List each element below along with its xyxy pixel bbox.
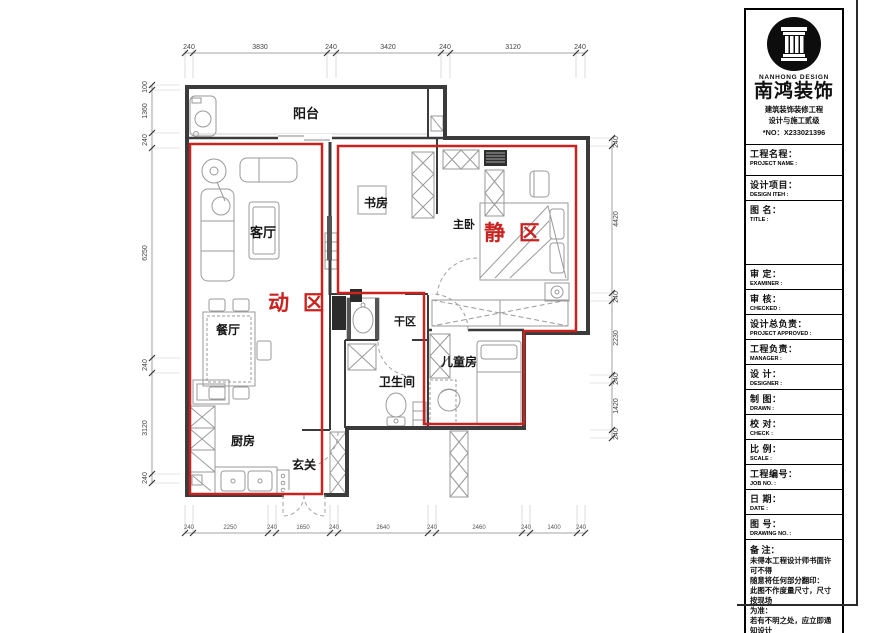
field-label-en: DRAWN : [750,406,838,412]
title-block-fields: 工程名程： PROJECT NAME : 设计项目： DESIGN ITEH :… [746,145,842,540]
quiet-zone-outline [338,146,576,424]
field-label-cn: 日 期： [750,492,838,505]
field-label-cn: 比 例： [750,442,838,455]
field-label-en: JOB NO. : [750,481,838,487]
title-block: NANHONG DESIGN 南鸿装饰 建筑装饰装修工程 设计与施工贰级 *NO… [744,8,844,633]
dim-label: 2250 [223,525,237,531]
living-room-label: 客厅 [250,225,276,240]
dim-label: 240 [427,525,438,531]
field-label-en: CHECK : [750,431,838,437]
floor-plan: 240 3830 240 3420 240 3120 240 100 1360 … [0,0,737,633]
field-label-cn: 工程负责： [750,342,838,355]
dim-label: 240 [267,525,278,531]
field-label-cn: 校 对： [750,417,838,430]
dim-label: 240 [329,525,340,531]
dim-label: 240 [613,428,620,440]
field-label-cn: 审 核： [750,292,838,305]
field-label-cn: 图 号： [750,517,838,530]
dim-label: 6250 [142,245,149,261]
dim-label: 240 [325,44,337,51]
field-label-en: SCALE : [750,456,838,462]
title-block-field: 审 核： CHECKED : [746,290,842,315]
field-label-en: EXAMINER : [750,281,838,287]
field-label-en: DRAWING NO. : [750,531,838,537]
dim-label: 240 [184,525,195,531]
dim-label: 3420 [380,44,396,51]
field-label-en: DESIGN ITEH : [750,192,838,198]
brand-cert-line2: 设计与施工贰级 [748,116,840,125]
sheet-frame-right [856,0,858,606]
title-block-field: 审 定： EXAMINER : [746,265,842,290]
dim-label: 1400 [547,525,561,531]
balcony-label: 阳台 [293,106,319,121]
dim-label: 3120 [505,44,521,51]
title-block-field: 设 计： DESIGNER : [746,365,842,390]
dim-label: 240 [613,136,620,148]
dim-label: 240 [521,525,532,531]
title-block-field: 工程名程： PROJECT NAME : [746,145,842,176]
title-block-field: 工程负责： MANAGER : [746,340,842,365]
brand-cert-no: *NO：X233021396 [748,128,840,138]
dim-label: 2460 [472,525,486,531]
dim-label: 240 [142,359,149,371]
dim-label: 100 [142,81,149,93]
field-label-en: CHECKED : [750,306,838,312]
field-label-cn: 设计总负责： [750,317,838,330]
dim-label: 2640 [376,525,390,531]
note-line: 此图不作度量尺寸，尺寸按现场 [750,586,838,606]
brand-name-cn: 南鸿装饰 [748,81,840,103]
dim-label: 1360 [142,103,149,119]
dry-area-label: 干区 [394,315,416,328]
title-block-field: 设计总负责： PROJECT APPROVED : [746,315,842,340]
title-block-field: 设计项目： DESIGN ITEH : [746,176,842,201]
kids-room-label: 儿童房 [440,354,477,369]
field-label-cn: 制 图： [750,392,838,405]
field-label-cn: 图 名： [750,203,838,216]
dim-label: 3120 [142,420,149,436]
bathroom-label: 卫生间 [379,374,415,389]
quiet-zone-label: 静 区 [484,221,544,245]
dimensions-layer: 240 3830 240 3420 240 3120 240 100 1360 … [142,44,620,536]
title-block-field: 图 名： TITLE : [746,201,842,265]
title-block-field: 日 期： DATE : [746,490,842,515]
dim-label: 240 [142,134,149,146]
note-line: 若有不明之处，应立即通知设计 [750,616,838,633]
dim-label: 240 [576,525,587,531]
notes-label: 备 注： [750,543,838,556]
brand-cert-line1: 建筑装饰装修工程 [748,105,840,114]
title-block-field: 工程编号： JOB NO. : [746,465,842,490]
note-line: 随意将任何部分翻印： [750,576,838,586]
foyer-label: 玄关 [292,457,316,472]
dim-label: 1650 [296,525,310,531]
dim-label: 1420 [613,398,620,414]
field-label-en: DATE : [750,506,838,512]
sheet-frame-bottom [737,604,857,606]
dining-room-label: 餐厅 [216,322,240,337]
brand-name-en: NANHONG DESIGN [748,74,840,81]
dim-label: 240 [613,291,620,303]
title-block-field: 比 例： SCALE : [746,440,842,465]
field-label-cn: 工程名程： [750,147,838,160]
field-label-en: TITLE : [750,217,838,223]
dim-label: 3830 [252,44,268,51]
kitchen-label: 厨房 [231,433,255,448]
master-bedroom-label: 主卧 [453,217,475,231]
dim-label: 240 [439,44,451,51]
drawing-sheet: 240 3830 240 3420 240 3120 240 100 1360 … [0,0,895,633]
field-label-cn: 设 计： [750,367,838,380]
field-label-cn: 审 定： [750,267,838,280]
field-label-cn: 工程编号： [750,467,838,480]
title-block-field: 校 对： CHECK : [746,415,842,440]
field-label-en: PROJECT APPROVED : [750,331,838,337]
column-logo-icon [767,17,821,71]
study-label: 书房 [364,195,388,210]
active-zone-outline [190,144,322,494]
field-label-en: DESIGNER : [750,381,838,387]
title-block-field: 制 图： DRAWN : [746,390,842,415]
dim-label: 2230 [613,330,620,346]
notes-box: 备 注： 未得本工程设计师书面许可不得 随意将任何部分翻印： 此图不作度量尺寸，… [746,540,842,633]
dim-label: 240 [574,44,586,51]
dim-label: 240 [183,44,195,51]
field-label-en: PROJECT NAME : [750,161,838,167]
field-label-cn: 设计项目： [750,178,838,191]
brand-header: NANHONG DESIGN 南鸿装饰 建筑装饰装修工程 设计与施工贰级 *NO… [746,10,842,145]
field-label-en: MANAGER : [750,356,838,362]
note-line: 未得本工程设计师书面许可不得 [750,556,838,576]
dim-label: 4420 [613,211,620,227]
dim-label: 240 [613,373,620,385]
note-line: 为准： [750,606,838,616]
title-block-field: 图 号： DRAWING NO. : [746,515,842,540]
notes-lines: 未得本工程设计师书面许可不得 随意将任何部分翻印： 此图不作度量尺寸，尺寸按现场… [750,556,838,633]
active-zone-label: 动 区 [268,292,328,315]
dim-label: 240 [142,472,149,484]
